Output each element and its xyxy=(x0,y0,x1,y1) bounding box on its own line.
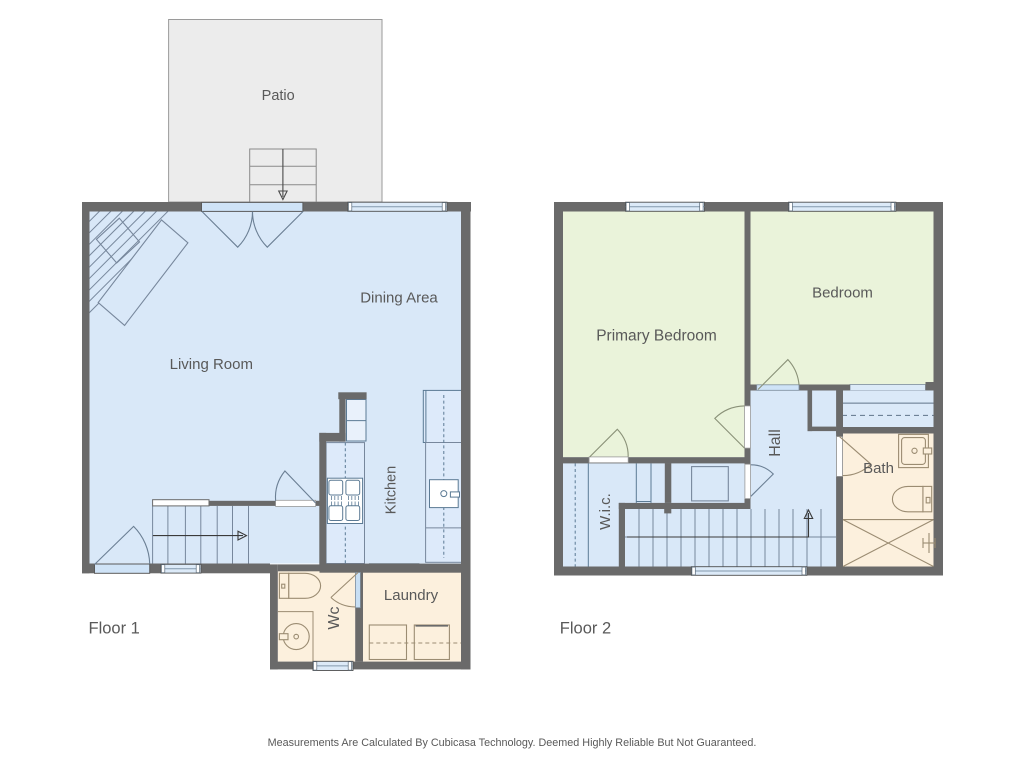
svg-text:Living Room: Living Room xyxy=(170,356,253,373)
svg-text:Kitchen: Kitchen xyxy=(383,466,399,514)
svg-text:Patio: Patio xyxy=(262,88,295,104)
svg-text:Hall: Hall xyxy=(767,429,784,457)
svg-text:Bedroom: Bedroom xyxy=(812,285,873,302)
svg-text:Floor 2: Floor 2 xyxy=(560,620,611,638)
svg-text:W.i.c.: W.i.c. xyxy=(597,493,614,530)
svg-text:Measurements Are Calculated By: Measurements Are Calculated By Cubicasa … xyxy=(268,737,757,749)
svg-text:Bath: Bath xyxy=(863,460,894,477)
svg-text:Primary Bedroom: Primary Bedroom xyxy=(596,328,717,345)
svg-text:Floor 1: Floor 1 xyxy=(89,620,140,638)
svg-text:Dining Area: Dining Area xyxy=(360,290,438,307)
svg-text:Wc: Wc xyxy=(326,606,343,629)
svg-text:Laundry: Laundry xyxy=(384,587,439,604)
